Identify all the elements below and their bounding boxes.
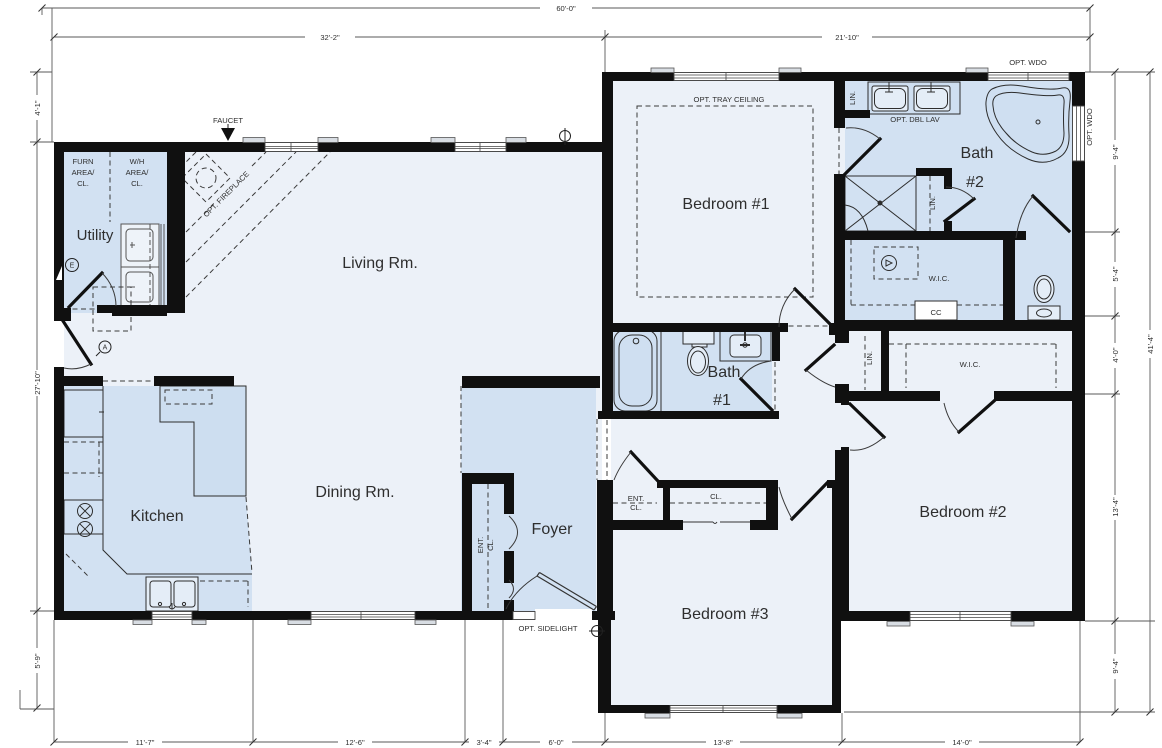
svg-text:Bedroom #1: Bedroom #1 bbox=[682, 196, 769, 213]
svg-text:LIN.: LIN. bbox=[865, 351, 874, 365]
svg-text:CL.: CL. bbox=[630, 503, 642, 512]
svg-text:#1: #1 bbox=[713, 392, 731, 409]
svg-text:21'-10": 21'-10" bbox=[835, 33, 859, 42]
svg-text:32'-2": 32'-2" bbox=[320, 33, 340, 42]
svg-text:LIN.: LIN. bbox=[848, 91, 857, 105]
svg-text:W.I.C.: W.I.C. bbox=[960, 360, 981, 369]
svg-text:FURN: FURN bbox=[72, 157, 93, 166]
svg-text:CC: CC bbox=[931, 308, 942, 317]
svg-text:6'-0": 6'-0" bbox=[548, 738, 563, 747]
svg-text:Bedroom #3: Bedroom #3 bbox=[681, 606, 768, 623]
svg-text:5'-9": 5'-9" bbox=[33, 653, 42, 668]
svg-text:14'-0": 14'-0" bbox=[952, 738, 972, 747]
svg-text:OPT. TRAY CEILING: OPT. TRAY CEILING bbox=[694, 95, 765, 104]
svg-text:ENT.: ENT. bbox=[628, 494, 644, 503]
svg-text:4'-1": 4'-1" bbox=[33, 100, 42, 115]
svg-text:CL.: CL. bbox=[710, 492, 722, 501]
svg-text:41'-4": 41'-4" bbox=[1146, 334, 1155, 354]
svg-text:9'-4": 9'-4" bbox=[1111, 658, 1120, 673]
svg-text:W/H: W/H bbox=[130, 157, 145, 166]
svg-text:#2: #2 bbox=[966, 174, 984, 191]
svg-text:3'-4": 3'-4" bbox=[476, 738, 491, 747]
svg-text:Kitchen: Kitchen bbox=[130, 508, 183, 525]
svg-text:AREA/: AREA/ bbox=[126, 168, 150, 177]
svg-text:ENT.: ENT. bbox=[476, 537, 485, 553]
svg-text:E: E bbox=[70, 263, 75, 270]
svg-text:CL.: CL. bbox=[131, 179, 143, 188]
svg-text:OPT. SIDELIGHT: OPT. SIDELIGHT bbox=[518, 624, 577, 633]
svg-text:OPT. WDO: OPT. WDO bbox=[1009, 58, 1047, 67]
svg-text:60'-0": 60'-0" bbox=[556, 4, 576, 13]
svg-text:Bedroom #2: Bedroom #2 bbox=[919, 504, 1006, 521]
svg-text:Foyer: Foyer bbox=[532, 521, 574, 538]
svg-text:OPT. DBL LAV: OPT. DBL LAV bbox=[890, 115, 940, 124]
svg-text:Utility: Utility bbox=[77, 227, 114, 244]
svg-text:12'-6": 12'-6" bbox=[345, 738, 365, 747]
svg-text:11'-7": 11'-7" bbox=[136, 738, 155, 747]
svg-text:27'-10": 27'-10" bbox=[33, 371, 42, 395]
svg-text:9'-4": 9'-4" bbox=[1111, 144, 1120, 159]
svg-text:OPT. WDO: OPT. WDO bbox=[1085, 108, 1094, 146]
svg-text:4'-0": 4'-0" bbox=[1111, 347, 1120, 362]
svg-text:FAUCET: FAUCET bbox=[213, 116, 243, 125]
svg-text:LIN.: LIN. bbox=[928, 196, 937, 210]
svg-text:5'-4": 5'-4" bbox=[1111, 266, 1120, 281]
svg-text:13'-4": 13'-4" bbox=[1111, 497, 1120, 517]
svg-text:13'-8": 13'-8" bbox=[713, 738, 733, 747]
svg-text:Living Rm.: Living Rm. bbox=[342, 255, 418, 272]
svg-text:Bath: Bath bbox=[708, 364, 741, 381]
svg-text:Bath: Bath bbox=[961, 145, 994, 162]
svg-text:CL.: CL. bbox=[486, 539, 495, 551]
svg-text:CL.: CL. bbox=[77, 179, 89, 188]
svg-text:AREA/: AREA/ bbox=[72, 168, 96, 177]
svg-text:Dining Rm.: Dining Rm. bbox=[315, 484, 394, 501]
svg-text:W.I.C.: W.I.C. bbox=[929, 274, 950, 283]
svg-text:A: A bbox=[103, 345, 108, 352]
